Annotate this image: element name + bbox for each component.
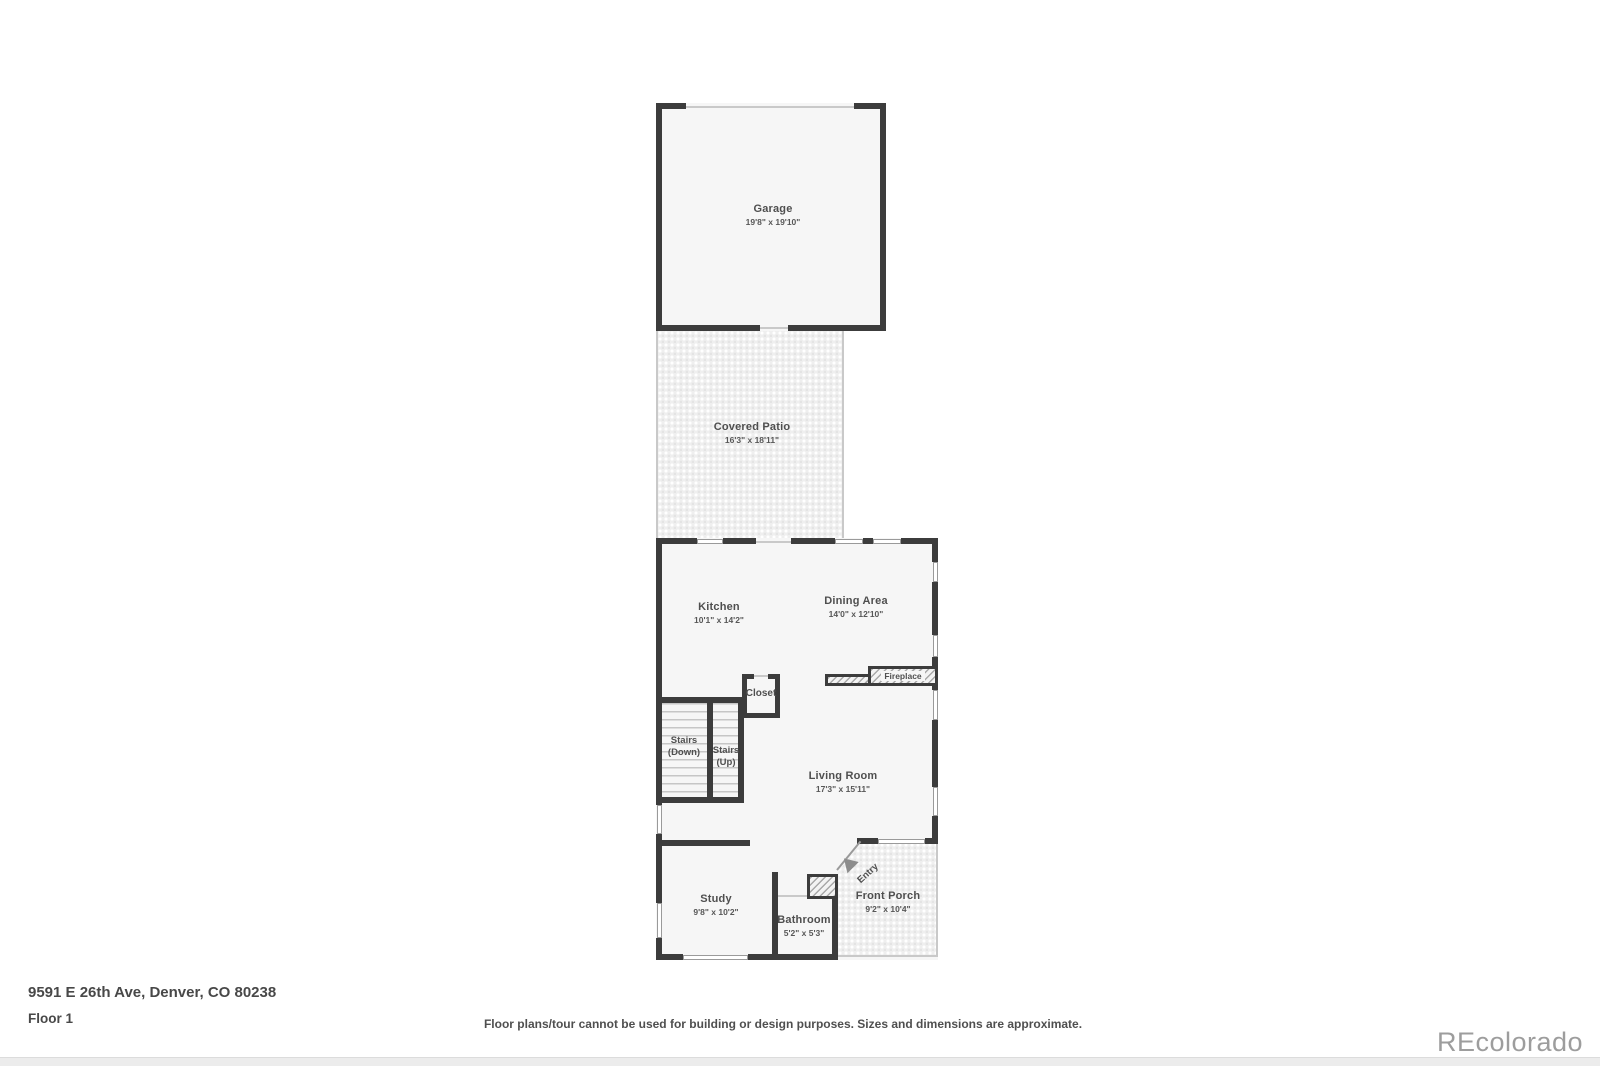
wall-segment bbox=[656, 103, 686, 109]
wall-segment bbox=[723, 538, 756, 544]
wall-segment bbox=[742, 674, 754, 679]
stairs-down-line1: Stairs bbox=[668, 735, 700, 747]
wall-segment bbox=[880, 103, 886, 331]
door-opening-line bbox=[686, 106, 854, 108]
room-label-garage: Garage 19'8" x 19'10" bbox=[746, 203, 801, 227]
wall-segment bbox=[854, 103, 886, 109]
room-dims: 16'3" x 18'11" bbox=[714, 435, 791, 445]
room-name: Dining Area bbox=[824, 595, 888, 608]
room-dims: 14'0" x 12'10" bbox=[824, 609, 888, 619]
room-dims: 9'2" x 10'4" bbox=[856, 904, 921, 914]
room-label-stairs-up: Stairs (Up) bbox=[713, 745, 739, 768]
wall-segment bbox=[932, 538, 938, 562]
fireplace-half-wall bbox=[825, 674, 872, 686]
bottom-strip bbox=[0, 1057, 1600, 1066]
window bbox=[873, 539, 901, 544]
wall-segment bbox=[791, 538, 835, 544]
door-opening-line bbox=[656, 331, 658, 538]
stairs-up-line1: Stairs bbox=[713, 745, 739, 757]
door-opening-line bbox=[842, 331, 844, 538]
recolorado-watermark: REcolorado bbox=[1437, 1027, 1583, 1058]
room-name: Garage bbox=[746, 203, 801, 216]
wall-segment bbox=[656, 538, 662, 805]
wall-segment bbox=[656, 325, 760, 331]
address-text: 9591 E 26th Ave, Denver, CO 80238 bbox=[28, 984, 276, 1001]
window bbox=[878, 839, 925, 844]
wall-segment bbox=[778, 954, 838, 960]
door-opening-line bbox=[936, 843, 938, 957]
fireplace: Fireplace bbox=[868, 666, 938, 686]
floor-label: Floor 1 bbox=[28, 1011, 73, 1026]
window bbox=[657, 903, 662, 938]
room-name: Living Room bbox=[809, 770, 878, 783]
room-label-covered-patio: Covered Patio 16'3" x 18'11" bbox=[714, 421, 791, 445]
room-label-stairs-down: Stairs (Down) bbox=[668, 735, 700, 758]
wall-segment bbox=[742, 713, 780, 718]
room-dims: 17'3" x 15'11" bbox=[809, 784, 878, 794]
window bbox=[683, 955, 748, 960]
window bbox=[657, 805, 662, 834]
room-dims: 5'2" x 5'3" bbox=[777, 928, 831, 938]
entry-closet bbox=[807, 874, 838, 899]
wall-segment bbox=[662, 538, 697, 544]
room-label-living-room: Living Room 17'3" x 15'11" bbox=[809, 770, 878, 794]
disclaimer-text: Floor plans/tour cannot be used for buil… bbox=[484, 1017, 1082, 1031]
door-opening-line bbox=[760, 327, 788, 329]
room-label-dining-area: Dining Area 14'0" x 12'10" bbox=[824, 595, 888, 619]
room-dims: 19'8" x 19'10" bbox=[746, 217, 801, 227]
wall-segment bbox=[788, 325, 886, 331]
window bbox=[933, 562, 938, 582]
door-opening-line bbox=[778, 895, 807, 897]
room-name: Front Porch bbox=[856, 890, 921, 903]
wall-segment bbox=[662, 697, 747, 703]
room-label-study: Study 9'8" x 10'2" bbox=[693, 893, 738, 917]
window bbox=[933, 690, 938, 720]
wall-segment bbox=[925, 838, 938, 844]
room-label-bathroom: Bathroom 5'2" x 5'3" bbox=[777, 914, 831, 938]
room-label-front-porch: Front Porch 9'2" x 10'4" bbox=[856, 890, 921, 914]
wall-segment bbox=[932, 582, 938, 635]
window bbox=[933, 787, 938, 816]
wall-segment bbox=[932, 720, 938, 787]
window bbox=[697, 539, 723, 544]
fireplace-label: Fireplace bbox=[881, 671, 924, 681]
wall-segment bbox=[656, 103, 662, 331]
room-dims: 9'8" x 10'2" bbox=[693, 907, 738, 917]
wall-segment bbox=[768, 674, 780, 679]
wall-segment bbox=[863, 538, 873, 544]
room-label-closet: Closet bbox=[746, 688, 777, 699]
room-label-kitchen: Kitchen 10'1" x 14'2" bbox=[694, 601, 744, 625]
wall-segment bbox=[662, 797, 744, 803]
wall-segment bbox=[662, 840, 750, 846]
window bbox=[933, 635, 938, 657]
floorplan-page: Fireplace Entry Garage 19'8" x 19'10" Co… bbox=[0, 0, 1600, 1066]
stairs-down-line2: (Down) bbox=[668, 747, 700, 759]
room-name: Bathroom bbox=[777, 914, 831, 927]
wall-segment bbox=[656, 954, 683, 960]
door-opening-line bbox=[756, 541, 791, 543]
room-dims: 10'1" x 14'2" bbox=[694, 615, 744, 625]
room-name: Kitchen bbox=[694, 601, 744, 614]
window bbox=[835, 539, 863, 544]
room-name: Study bbox=[693, 893, 738, 906]
room-name: Covered Patio bbox=[714, 421, 791, 434]
door-opening-line bbox=[754, 675, 768, 677]
door-opening-line bbox=[838, 955, 938, 957]
stairs-up-line2: (Up) bbox=[713, 757, 739, 769]
